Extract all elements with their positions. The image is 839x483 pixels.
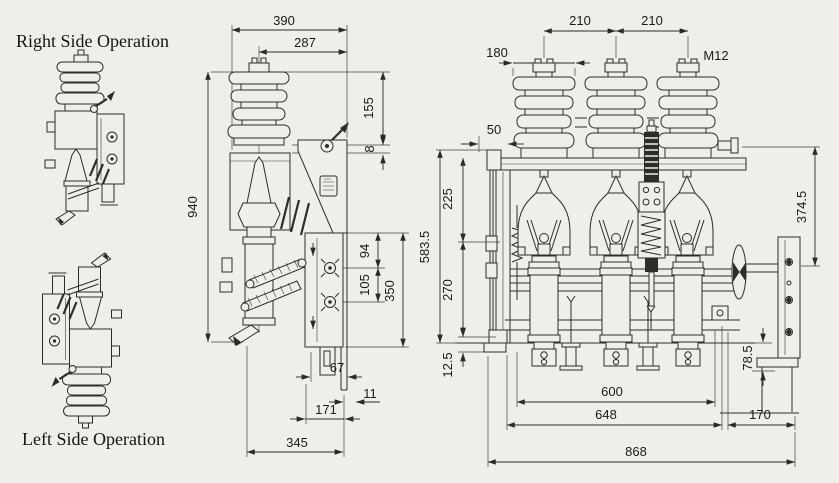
dim-583-5-label: 583.5 <box>417 231 432 264</box>
dim-105-label: 105 <box>357 274 372 296</box>
dim-225-label: 225 <box>440 188 455 210</box>
dim-94-label: 94 <box>357 244 372 258</box>
dim-648-label: 648 <box>595 407 617 422</box>
operating-mechanism <box>712 237 800 413</box>
dim-390-label: 390 <box>273 13 295 28</box>
dim-50-label: 50 <box>487 122 501 137</box>
left-side-operation-label: Left Side Operation <box>22 429 165 449</box>
spring-actuator-column <box>638 120 665 330</box>
front-view-drawing: 210 210 M12 180 50 583.5 225 270 12.5 37… <box>417 13 820 467</box>
dim-210-right-label: 210 <box>641 13 663 28</box>
dim-287-label: 287 <box>294 35 316 50</box>
dim-868-label: 868 <box>625 444 647 459</box>
dim-350-label: 350 <box>382 280 397 302</box>
dim-170-label: 170 <box>749 407 771 422</box>
dim-155-label: 155 <box>361 97 376 119</box>
front-view-poles <box>513 59 719 366</box>
side-view-art <box>220 58 349 390</box>
dim-374-5-label: 374.5 <box>794 191 809 224</box>
switchgear-dimension-drawing-page: Right Side Operation Left Side Operation <box>0 0 839 483</box>
side-view-dimensions: 390 287 155 8 940 94 105 350 67 11 <box>185 13 403 452</box>
side-view-drawing: 390 287 155 8 940 94 105 350 67 11 <box>185 13 409 457</box>
right-side-operation-label: Right Side Operation <box>16 31 169 51</box>
dim-270-label: 270 <box>440 279 455 301</box>
terminal-thread-label: M12 <box>703 48 728 63</box>
right-side-operation-figure <box>45 50 124 225</box>
dim-940-label: 940 <box>185 196 200 218</box>
dim-210-left-label: 210 <box>569 13 591 28</box>
dim-78-5-label: 78.5 <box>740 345 755 370</box>
dim-345-label: 345 <box>286 435 308 450</box>
dim-8-label: 8 <box>362 145 377 152</box>
dim-12-5-label: 12.5 <box>440 352 455 377</box>
left-side-operation-figure <box>43 253 122 428</box>
technical-drawing: Right Side Operation Left Side Operation <box>0 0 839 483</box>
dim-180-label: 180 <box>486 45 508 60</box>
dim-11-label: 11 <box>363 386 377 401</box>
dim-67-label: 67 <box>330 360 344 375</box>
dim-600-label: 600 <box>601 384 623 399</box>
dim-171-label: 171 <box>315 402 337 417</box>
